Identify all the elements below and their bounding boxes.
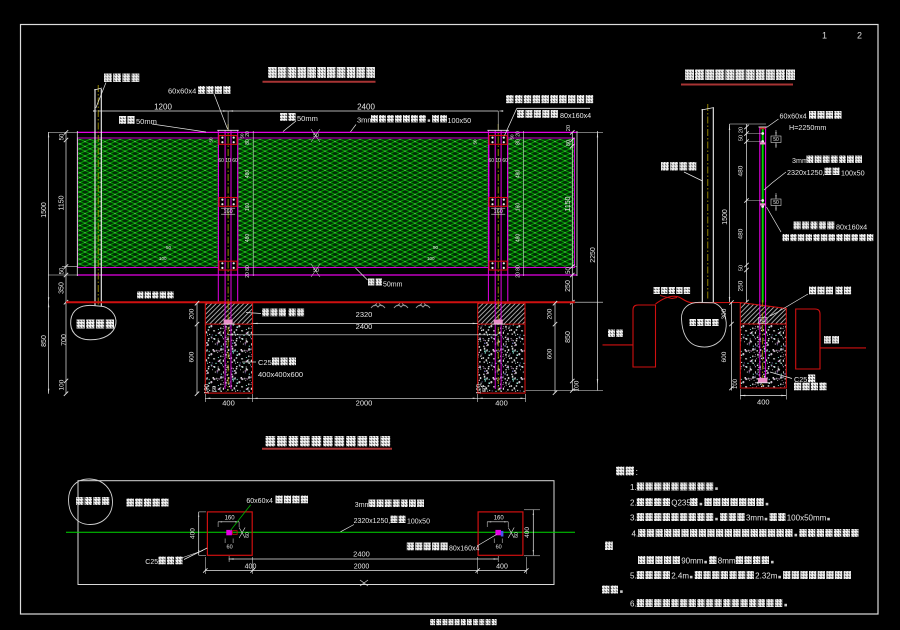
svg-text:80: 80 bbox=[515, 265, 521, 271]
svg-text:50: 50 bbox=[739, 265, 745, 271]
svg-text:400: 400 bbox=[496, 564, 508, 571]
svg-text:C25: C25 bbox=[258, 358, 272, 367]
svg-text:200: 200 bbox=[189, 308, 196, 319]
svg-text:600: 600 bbox=[547, 348, 554, 359]
svg-text:50: 50 bbox=[240, 133, 245, 139]
svg-text:100: 100 bbox=[204, 383, 210, 394]
svg-text:3mm: 3mm bbox=[746, 513, 764, 522]
svg-text:2.32m: 2.32m bbox=[755, 571, 778, 580]
svg-text:80x160x4: 80x160x4 bbox=[449, 545, 479, 552]
svg-text:100: 100 bbox=[574, 380, 581, 391]
svg-text:80: 80 bbox=[566, 140, 572, 146]
svg-text:3.: 3. bbox=[630, 513, 637, 522]
svg-text:60x60x4: 60x60x4 bbox=[168, 86, 196, 95]
svg-text:50: 50 bbox=[739, 135, 745, 141]
svg-text:50: 50 bbox=[473, 139, 478, 145]
svg-text:60: 60 bbox=[760, 319, 766, 325]
svg-text:400: 400 bbox=[245, 564, 257, 571]
svg-text:100: 100 bbox=[159, 256, 167, 261]
svg-text::: : bbox=[635, 467, 638, 477]
svg-text:600: 600 bbox=[189, 351, 196, 362]
svg-text:80: 80 bbox=[515, 139, 521, 145]
svg-text:100: 100 bbox=[733, 378, 739, 389]
svg-text:2400: 2400 bbox=[357, 103, 375, 112]
svg-text:3mm: 3mm bbox=[355, 502, 371, 509]
svg-text:2320x1250,: 2320x1250, bbox=[354, 518, 391, 525]
svg-text:1.: 1. bbox=[630, 483, 637, 492]
svg-text:50: 50 bbox=[566, 267, 572, 274]
svg-text:Q235: Q235 bbox=[671, 498, 691, 507]
svg-text:50: 50 bbox=[433, 245, 439, 250]
svg-text:60 10 60: 60 10 60 bbox=[218, 158, 238, 164]
svg-text:50: 50 bbox=[773, 137, 779, 143]
svg-text:700: 700 bbox=[61, 334, 68, 346]
svg-text:50: 50 bbox=[773, 200, 779, 206]
svg-text:2320x1250,: 2320x1250, bbox=[787, 168, 825, 177]
svg-text:60x60x4: 60x60x4 bbox=[246, 498, 273, 505]
svg-text:100: 100 bbox=[427, 256, 435, 261]
svg-text:50: 50 bbox=[166, 245, 172, 250]
svg-text:250: 250 bbox=[738, 280, 745, 291]
svg-text:100x50: 100x50 bbox=[841, 168, 865, 177]
svg-text:480: 480 bbox=[245, 170, 251, 179]
svg-text:100x50: 100x50 bbox=[448, 116, 472, 125]
svg-text:300: 300 bbox=[721, 308, 728, 319]
svg-text:60: 60 bbox=[514, 532, 520, 538]
svg-text:160: 160 bbox=[225, 515, 236, 521]
svg-text:50mm: 50mm bbox=[297, 114, 318, 123]
svg-text:600: 600 bbox=[721, 351, 728, 362]
svg-text:1: 1 bbox=[822, 31, 827, 41]
svg-text:60 10 60: 60 10 60 bbox=[488, 158, 508, 164]
svg-text:C25: C25 bbox=[145, 559, 158, 566]
svg-text:90mm: 90mm bbox=[681, 556, 704, 565]
svg-text:50: 50 bbox=[60, 133, 66, 140]
svg-text:1150: 1150 bbox=[59, 195, 66, 210]
svg-text:50: 50 bbox=[209, 137, 214, 143]
svg-text:400: 400 bbox=[495, 399, 508, 408]
svg-text:400: 400 bbox=[190, 528, 197, 539]
svg-text:2320: 2320 bbox=[356, 310, 373, 319]
svg-text:2000: 2000 bbox=[354, 564, 370, 571]
svg-text:H=2250mm: H=2250mm bbox=[789, 123, 826, 132]
svg-text:6.: 6. bbox=[630, 599, 637, 608]
svg-text:2.: 2. bbox=[630, 498, 637, 507]
svg-text:100x50: 100x50 bbox=[407, 518, 430, 525]
svg-text:400: 400 bbox=[222, 399, 235, 408]
svg-text:4.: 4. bbox=[632, 529, 639, 538]
svg-text:850: 850 bbox=[41, 335, 48, 347]
svg-text:20: 20 bbox=[245, 272, 251, 278]
svg-text:400x400x600: 400x400x600 bbox=[258, 370, 303, 379]
svg-text:2.4m: 2.4m bbox=[671, 571, 689, 580]
svg-text:80x160x4: 80x160x4 bbox=[836, 222, 867, 231]
svg-text:20: 20 bbox=[515, 131, 521, 137]
svg-text:60x60x4: 60x60x4 bbox=[780, 111, 807, 120]
svg-text:480: 480 bbox=[245, 234, 251, 243]
svg-text:2000: 2000 bbox=[356, 399, 373, 408]
svg-text:50mm: 50mm bbox=[383, 281, 403, 288]
svg-text:100x50mm: 100x50mm bbox=[787, 513, 827, 522]
svg-text:480: 480 bbox=[738, 165, 745, 176]
svg-text:5.: 5. bbox=[630, 571, 637, 580]
svg-text:1200: 1200 bbox=[154, 103, 172, 112]
svg-text:400: 400 bbox=[757, 398, 770, 407]
svg-text:3mm: 3mm bbox=[792, 156, 808, 165]
svg-text:60: 60 bbox=[496, 545, 502, 551]
svg-text:20: 20 bbox=[245, 131, 251, 137]
svg-text:480: 480 bbox=[515, 170, 521, 179]
svg-text:80x160x4: 80x160x4 bbox=[560, 111, 591, 120]
svg-text:2400: 2400 bbox=[356, 322, 373, 331]
svg-text:60: 60 bbox=[482, 386, 488, 392]
svg-text:50: 50 bbox=[60, 267, 66, 274]
svg-text:160: 160 bbox=[245, 203, 251, 212]
svg-text:60: 60 bbox=[212, 386, 218, 392]
svg-text:50: 50 bbox=[510, 134, 515, 140]
svg-text:1500: 1500 bbox=[41, 202, 48, 218]
svg-text:2250: 2250 bbox=[590, 247, 597, 263]
svg-text:480: 480 bbox=[738, 228, 745, 239]
svg-text:160: 160 bbox=[494, 515, 505, 521]
svg-text:60: 60 bbox=[245, 532, 251, 538]
svg-text:8mm: 8mm bbox=[718, 556, 736, 565]
svg-text:20: 20 bbox=[739, 127, 745, 133]
svg-text:2: 2 bbox=[857, 31, 862, 41]
svg-text:850: 850 bbox=[565, 331, 572, 343]
svg-text:60: 60 bbox=[227, 545, 233, 551]
svg-text:1150: 1150 bbox=[565, 196, 572, 211]
svg-text:80: 80 bbox=[245, 265, 251, 271]
svg-text:80: 80 bbox=[245, 139, 251, 145]
svg-text:250: 250 bbox=[565, 280, 572, 292]
svg-text:200: 200 bbox=[547, 308, 554, 319]
svg-text:1500: 1500 bbox=[722, 209, 729, 225]
svg-text:350: 350 bbox=[59, 282, 66, 294]
svg-text:100: 100 bbox=[59, 379, 66, 390]
svg-text:2400: 2400 bbox=[353, 550, 370, 559]
svg-text:480: 480 bbox=[515, 234, 521, 243]
svg-text:20: 20 bbox=[566, 125, 572, 131]
svg-text:400: 400 bbox=[524, 527, 531, 538]
svg-text:160: 160 bbox=[515, 203, 521, 212]
svg-text:20: 20 bbox=[515, 272, 521, 278]
